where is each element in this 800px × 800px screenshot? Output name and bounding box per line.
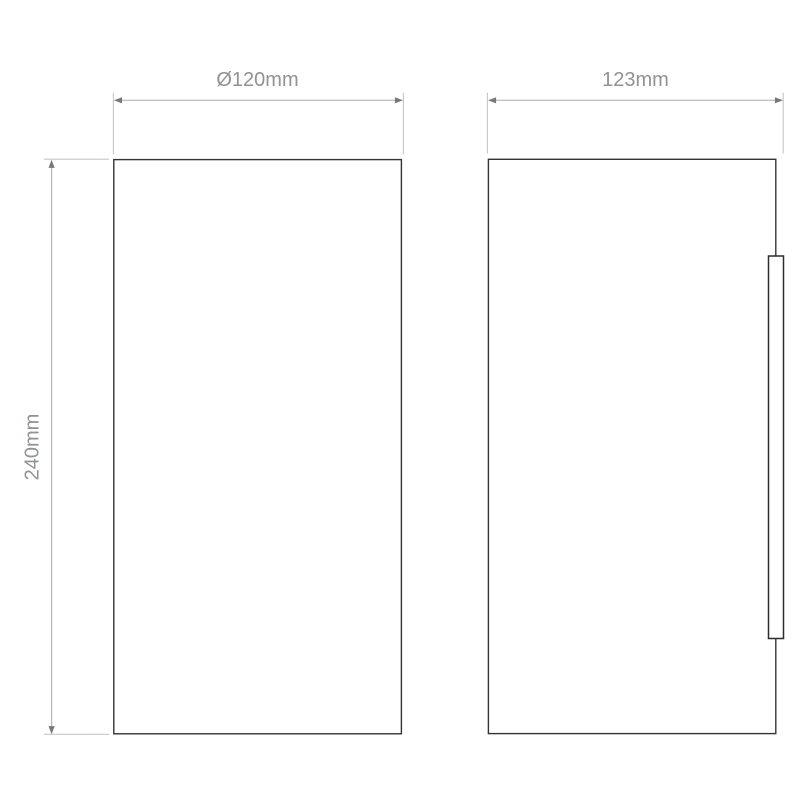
svg-text:123mm: 123mm [602,69,669,91]
svg-text:Ø120mm: Ø120mm [216,69,298,91]
svg-text:240mm: 240mm [22,414,44,481]
